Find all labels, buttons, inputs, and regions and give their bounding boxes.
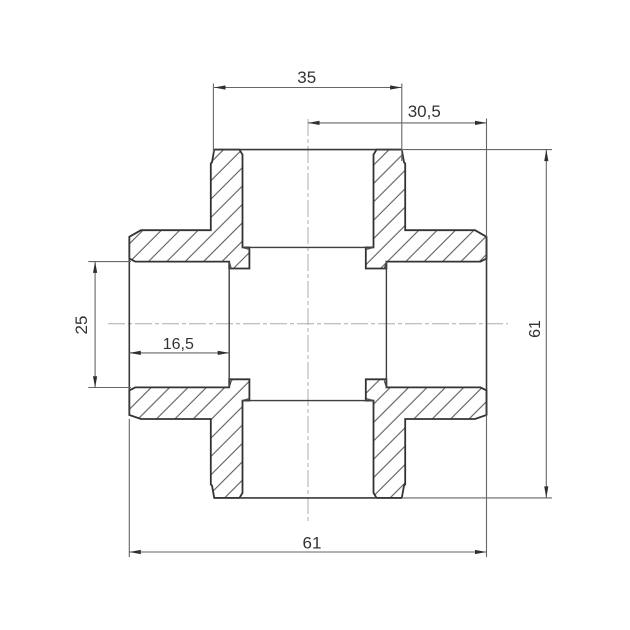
svg-text:61: 61 xyxy=(527,320,544,338)
svg-text:25: 25 xyxy=(72,316,91,335)
svg-text:16,5: 16,5 xyxy=(163,336,194,353)
svg-text:35: 35 xyxy=(297,68,316,87)
svg-text:61: 61 xyxy=(303,533,322,552)
svg-text:30,5: 30,5 xyxy=(408,102,441,121)
